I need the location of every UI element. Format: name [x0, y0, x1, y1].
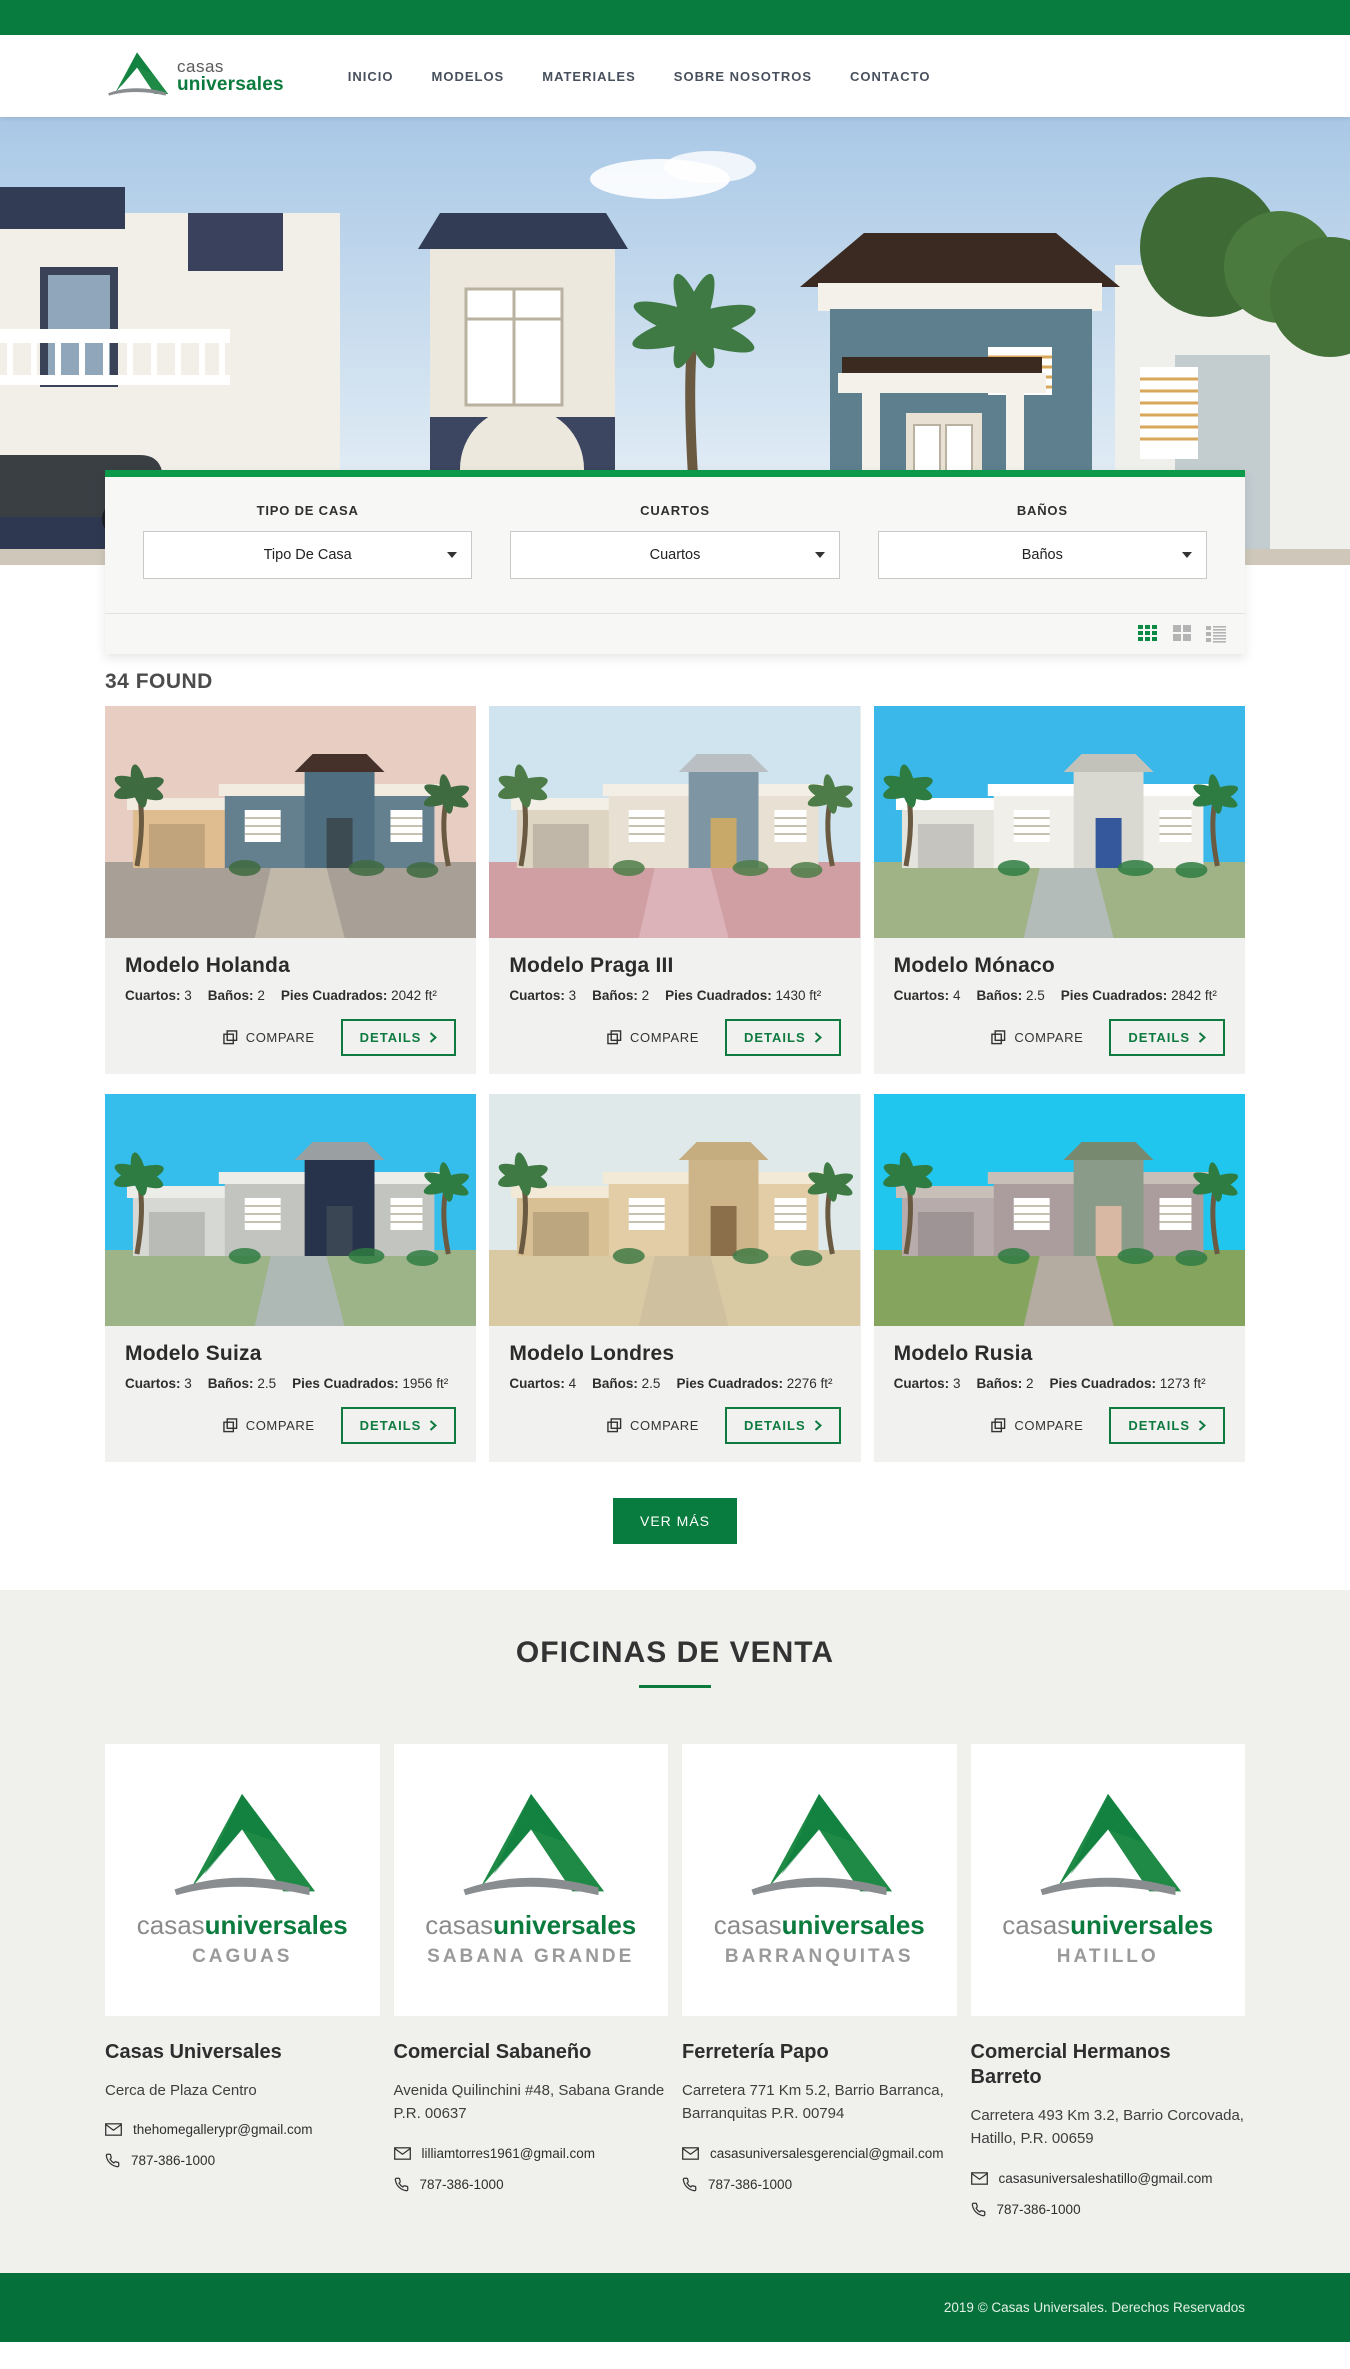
- model-card: Modelo Mónaco Cuartos: 4 Baños: 2.5 Pies…: [874, 706, 1245, 1074]
- banos-select[interactable]: Baños: [878, 531, 1207, 579]
- office-card: casasuniversales SABANA GRANDE Comercial…: [394, 1744, 669, 2217]
- copy-icon: [991, 1030, 1006, 1045]
- copy-icon: [607, 1030, 622, 1045]
- copy-icon: [223, 1030, 238, 1045]
- chevron-right-icon: [814, 1032, 822, 1043]
- office-address: Carretera 771 Km 5.2, Barrio Barranca, B…: [682, 2079, 957, 2126]
- model-photo[interactable]: [105, 706, 476, 938]
- model-card: Modelo Praga III Cuartos: 3 Baños: 2 Pie…: [489, 706, 860, 1074]
- office-name: Comercial Sabaneño: [394, 2040, 669, 2065]
- model-title: Modelo Suiza: [125, 1342, 456, 1366]
- office-logo: casasuniversales CAGUAS: [105, 1744, 380, 2016]
- ver-mas-button[interactable]: VER MÁS: [613, 1498, 737, 1544]
- phone-icon: [105, 2153, 120, 2168]
- compare-button[interactable]: COMPARE: [223, 1418, 315, 1433]
- models-grid: Modelo Holanda Cuartos: 3 Baños: 2 Pies …: [105, 706, 1245, 1462]
- copy-icon: [223, 1418, 238, 1433]
- caret-down-icon: [1182, 552, 1192, 558]
- details-button[interactable]: DETAILS: [725, 1407, 841, 1444]
- envelope-icon: [682, 2147, 699, 2160]
- compare-button[interactable]: COMPARE: [223, 1030, 315, 1045]
- tipo-de-casa-select[interactable]: Tipo De Casa: [143, 531, 472, 579]
- nav-item-inicio[interactable]: INICIO: [348, 69, 394, 84]
- office-email[interactable]: lilliamtorres1961@gmail.com: [394, 2146, 669, 2161]
- nav-item-materiales[interactable]: MATERIALES: [542, 69, 636, 84]
- office-card: casasuniversales HATILLO Comercial Herma…: [971, 1744, 1246, 2217]
- model-title: Modelo Mónaco: [894, 954, 1225, 978]
- office-name: Comercial Hermanos Barreto: [971, 2040, 1246, 2090]
- office-logo: casasuniversales BARRANQUITAS: [682, 1744, 957, 2016]
- chevron-right-icon: [814, 1420, 822, 1431]
- view-grid-2x2-icon[interactable]: [1171, 624, 1193, 644]
- office-card: casasuniversales BARRANQUITAS Ferretería…: [682, 1744, 957, 2217]
- office-location: BARRANQUITAS: [725, 1946, 914, 1968]
- caret-down-icon: [447, 552, 457, 558]
- model-card: Modelo Holanda Cuartos: 3 Baños: 2 Pies …: [105, 706, 476, 1074]
- model-photo[interactable]: [489, 706, 860, 938]
- office-address: Carretera 493 Km 3.2, Barrio Corcovada, …: [971, 2104, 1246, 2151]
- nav-item-sobre-nosotros[interactable]: SOBRE NOSOTROS: [674, 69, 812, 84]
- cuartos-select[interactable]: Cuartos: [510, 531, 839, 579]
- model-title: Modelo Holanda: [125, 954, 456, 978]
- logo-word-casas: casas: [177, 58, 284, 75]
- offices-grid: casasuniversales CAGUAS Casas Universale…: [105, 1744, 1245, 2217]
- phone-icon: [682, 2177, 697, 2192]
- model-card: Modelo Rusia Cuartos: 3 Baños: 2 Pies Cu…: [874, 1094, 1245, 1462]
- office-location: CAGUAS: [192, 1946, 292, 1968]
- office-phone[interactable]: 787-386-1000: [105, 2153, 380, 2168]
- brand-logo[interactable]: casas universales: [105, 51, 284, 102]
- details-button[interactable]: DETAILS: [725, 1019, 841, 1056]
- caret-down-icon: [815, 552, 825, 558]
- details-button[interactable]: DETAILS: [341, 1407, 457, 1444]
- view-grid-3x3-icon[interactable]: [1137, 624, 1159, 644]
- office-logo: casasuniversales SABANA GRANDE: [394, 1744, 669, 2016]
- office-logo: casasuniversales HATILLO: [971, 1744, 1246, 2016]
- office-location: SABANA GRANDE: [427, 1946, 634, 1968]
- compare-button[interactable]: COMPARE: [991, 1418, 1083, 1433]
- phone-icon: [971, 2202, 986, 2217]
- office-phone[interactable]: 787-386-1000: [394, 2177, 669, 2192]
- details-button[interactable]: DETAILS: [1109, 1019, 1225, 1056]
- model-photo[interactable]: [874, 706, 1245, 938]
- office-name: Casas Universales: [105, 2040, 380, 2065]
- chevron-right-icon: [1198, 1420, 1206, 1431]
- view-list-icon[interactable]: [1205, 624, 1227, 644]
- model-title: Modelo Praga III: [509, 954, 840, 978]
- copy-icon: [607, 1418, 622, 1433]
- phone-icon: [394, 2177, 409, 2192]
- model-card: Modelo Suiza Cuartos: 3 Baños: 2.5 Pies …: [105, 1094, 476, 1462]
- brand-mountain-icon: [167, 1792, 317, 1902]
- model-photo[interactable]: [874, 1094, 1245, 1326]
- chevron-right-icon: [1198, 1032, 1206, 1043]
- nav-item-modelos[interactable]: MODELOS: [432, 69, 505, 84]
- model-title: Modelo Londres: [509, 1342, 840, 1366]
- brand-mountain-icon: [744, 1792, 894, 1902]
- filter-label-cuartos: CUARTOS: [510, 503, 839, 518]
- office-location: HATILLO: [1057, 1946, 1159, 1968]
- nav-item-contacto[interactable]: CONTACTO: [850, 69, 930, 84]
- offices-section: OFICINAS DE VENTA casasuniversales CAGUA…: [0, 1590, 1350, 2273]
- site-header: casas universales INICIO MODELOS MATERIA…: [0, 35, 1350, 117]
- office-email[interactable]: thehomegallerypr@gmail.com: [105, 2122, 380, 2137]
- compare-button[interactable]: COMPARE: [607, 1418, 699, 1433]
- chevron-right-icon: [429, 1032, 437, 1043]
- main-nav: INICIO MODELOS MATERIALES SOBRE NOSOTROS…: [348, 69, 931, 84]
- office-phone[interactable]: 787-386-1000: [682, 2177, 957, 2192]
- chevron-right-icon: [429, 1420, 437, 1431]
- brand-mountain-icon: [456, 1792, 606, 1902]
- envelope-icon: [105, 2123, 122, 2136]
- details-button[interactable]: DETAILS: [1109, 1407, 1225, 1444]
- filter-label-banos: BAÑOS: [878, 503, 1207, 518]
- search-filter-panel: TIPO DE CASA Tipo De Casa CUARTOS Cuarto…: [105, 470, 1245, 654]
- compare-button[interactable]: COMPARE: [991, 1030, 1083, 1045]
- title-underline: [639, 1685, 711, 1688]
- results-count: 34 FOUND: [105, 670, 1245, 694]
- envelope-icon: [971, 2172, 988, 2185]
- office-address: Cerca de Plaza Centro: [105, 2079, 380, 2102]
- copyright-text: 2019 © Casas Universales. Derechos Reser…: [105, 2300, 1245, 2315]
- logo-word-universales: universales: [177, 75, 284, 94]
- model-card: Modelo Londres Cuartos: 4 Baños: 2.5 Pie…: [489, 1094, 860, 1462]
- details-button[interactable]: DETAILS: [341, 1019, 457, 1056]
- compare-button[interactable]: COMPARE: [607, 1030, 699, 1045]
- filter-label-tipo: TIPO DE CASA: [143, 503, 472, 518]
- brand-mountain-icon: [1033, 1792, 1183, 1902]
- site-footer: 2019 © Casas Universales. Derechos Reser…: [0, 2273, 1350, 2342]
- offices-title: OFICINAS DE VENTA: [105, 1636, 1245, 1670]
- model-title: Modelo Rusia: [894, 1342, 1225, 1366]
- office-email[interactable]: casasuniversalesgerencial@gmail.com: [682, 2146, 957, 2161]
- office-phone[interactable]: 787-386-1000: [971, 2202, 1246, 2217]
- office-card: casasuniversales CAGUAS Casas Universale…: [105, 1744, 380, 2217]
- top-accent-bar: [0, 0, 1350, 35]
- copy-icon: [991, 1418, 1006, 1433]
- office-email[interactable]: casasuniversaleshatillo@gmail.com: [971, 2171, 1246, 2186]
- envelope-icon: [394, 2147, 411, 2160]
- brand-mountain-icon: [105, 51, 169, 102]
- model-photo[interactable]: [105, 1094, 476, 1326]
- office-name: Ferretería Papo: [682, 2040, 957, 2065]
- office-address: Avenida Quilinchini #48, Sabana Grande P…: [394, 2079, 669, 2126]
- model-photo[interactable]: [489, 1094, 860, 1326]
